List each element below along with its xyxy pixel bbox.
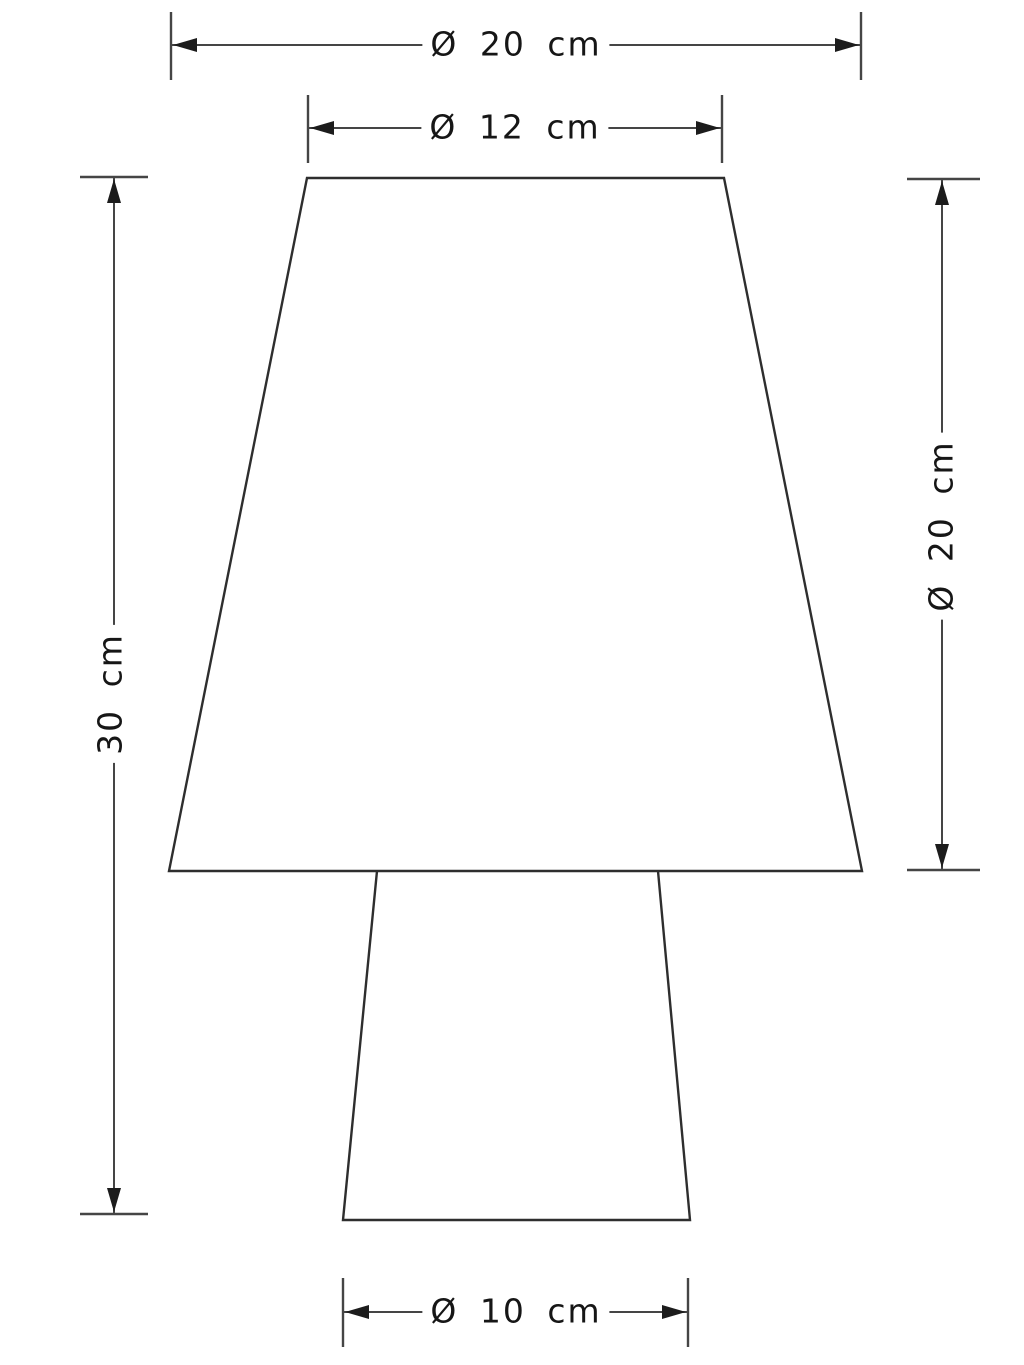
dim-base-diameter-label: Ø 10 cm: [422, 1290, 609, 1331]
dim-outer-diameter-label: Ø 20 cm: [422, 23, 609, 64]
drawing-layer: [0, 0, 1024, 1365]
lamp-base-outline: [343, 871, 690, 1220]
dim-total-height-arrow-down-icon: [107, 1188, 121, 1212]
dim-shade-height-label: Ø 20 cm: [920, 432, 961, 619]
dimension-drawing: Ø 20 cm Ø 12 cm 30 cm Ø 20 cm Ø 10 cm: [0, 0, 1024, 1365]
dim-total-height-arrow-up-icon: [107, 179, 121, 203]
dim-base-arrow-left-icon: [345, 1305, 369, 1319]
dim-total-height-label: 30 cm: [89, 625, 130, 763]
dim-outer-arrow-right-icon: [835, 38, 859, 52]
dim-outer-arrow-left-icon: [173, 38, 197, 52]
dim-shade-top-arrow-right-icon: [696, 121, 720, 135]
dim-shade-top-arrow-left-icon: [310, 121, 334, 135]
lamp-shade-outline: [169, 178, 862, 871]
dim-shade-top-diameter-label: Ø 12 cm: [421, 106, 608, 147]
dim-base-arrow-right-icon: [662, 1305, 686, 1319]
dim-shade-height-arrow-down-icon: [935, 844, 949, 868]
dim-shade-height-arrow-up-icon: [935, 181, 949, 205]
